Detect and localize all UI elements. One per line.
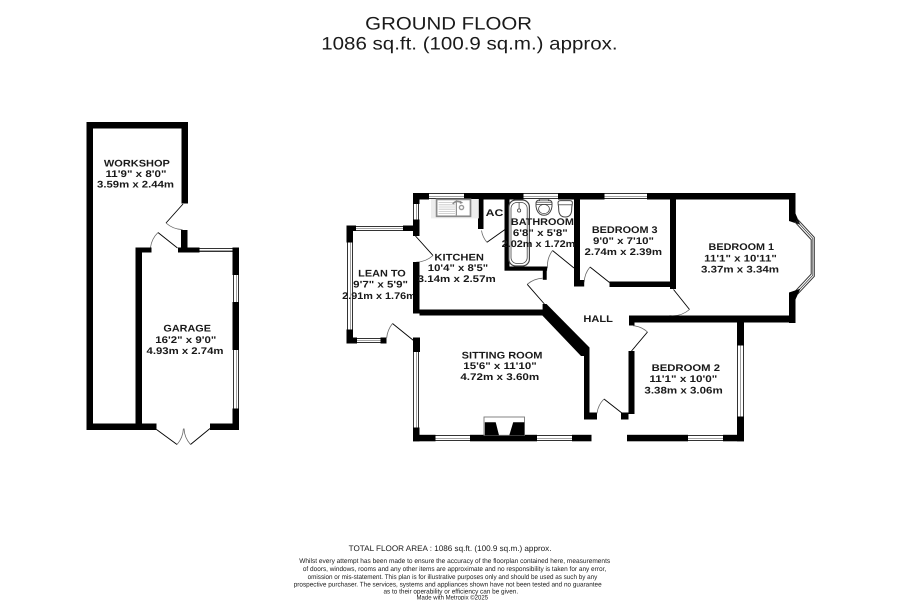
svg-text:Whilst every attempt has been: Whilst every attempt has been made to en… <box>299 558 611 565</box>
svg-text:6'8" x 5'8": 6'8" x 5'8" <box>513 228 568 239</box>
svg-text:11'1" x 10'11": 11'1" x 10'11" <box>704 253 777 264</box>
svg-text:prospective purchaser. The ser: prospective purchaser. The services, sys… <box>294 581 602 588</box>
svg-text:3.59m x 2.44m: 3.59m x 2.44m <box>97 180 174 191</box>
svg-text:9'0" x 7'10": 9'0" x 7'10" <box>593 236 654 247</box>
svg-text:omission or mis-statement. Thi: omission or mis-statement. This plan is … <box>308 574 598 581</box>
svg-text:GROUND FLOOR: GROUND FLOOR <box>365 13 532 33</box>
svg-text:LEAN TO: LEAN TO <box>358 269 406 280</box>
svg-text:1086 sq.ft. (100.9 sq.m.) appr: 1086 sq.ft. (100.9 sq.m.) approx. <box>321 33 617 53</box>
svg-text:WORKSHOP: WORKSHOP <box>104 158 171 169</box>
svg-text:HALL: HALL <box>583 314 613 325</box>
svg-text:4.93m x 2.74m: 4.93m x 2.74m <box>147 346 224 357</box>
svg-text:16'2" x 9'0": 16'2" x 9'0" <box>155 335 216 346</box>
svg-text:Made with Metropix ©2025: Made with Metropix ©2025 <box>417 594 489 600</box>
svg-text:11'9" x 8'0": 11'9" x 8'0" <box>106 169 167 180</box>
svg-text:15'6" x 11'10": 15'6" x 11'10" <box>463 361 536 372</box>
svg-text:3.14m x 2.57m: 3.14m x 2.57m <box>418 274 496 285</box>
svg-text:9'7" x 5'9": 9'7" x 5'9" <box>353 280 408 291</box>
svg-text:BEDROOM 1: BEDROOM 1 <box>709 242 775 253</box>
svg-text:GARAGE: GARAGE <box>163 324 211 335</box>
svg-text:11'1" x 10'0": 11'1" x 10'0" <box>649 374 717 385</box>
svg-text:AC: AC <box>486 208 504 219</box>
svg-text:2.74m x 2.39m: 2.74m x 2.39m <box>585 247 663 258</box>
svg-text:TOTAL FLOOR AREA : 1086 sq.ft.: TOTAL FLOOR AREA : 1086 sq.ft. (100.9 sq… <box>349 544 552 553</box>
svg-text:3.37m x 3.34m: 3.37m x 3.34m <box>701 264 779 275</box>
svg-text:2.02m x 1.72m: 2.02m x 1.72m <box>502 239 576 250</box>
svg-text:SITTING ROOM: SITTING ROOM <box>462 351 543 362</box>
svg-text:BEDROOM 2: BEDROOM 2 <box>652 363 720 374</box>
svg-text:3.38m x 3.06m: 3.38m x 3.06m <box>644 385 722 396</box>
svg-text:2.91m x 1.76m: 2.91m x 1.76m <box>342 291 416 302</box>
svg-text:4.72m x 3.60m: 4.72m x 3.60m <box>460 372 539 383</box>
svg-text:10'4" x 8'5": 10'4" x 8'5" <box>428 263 488 274</box>
svg-text:BATHROOM: BATHROOM <box>511 217 574 228</box>
svg-text:KITCHEN: KITCHEN <box>434 252 484 263</box>
svg-text:BEDROOM 3: BEDROOM 3 <box>592 225 658 236</box>
svg-text:of doors, windows, rooms and a: of doors, windows, rooms and any other i… <box>303 566 606 573</box>
